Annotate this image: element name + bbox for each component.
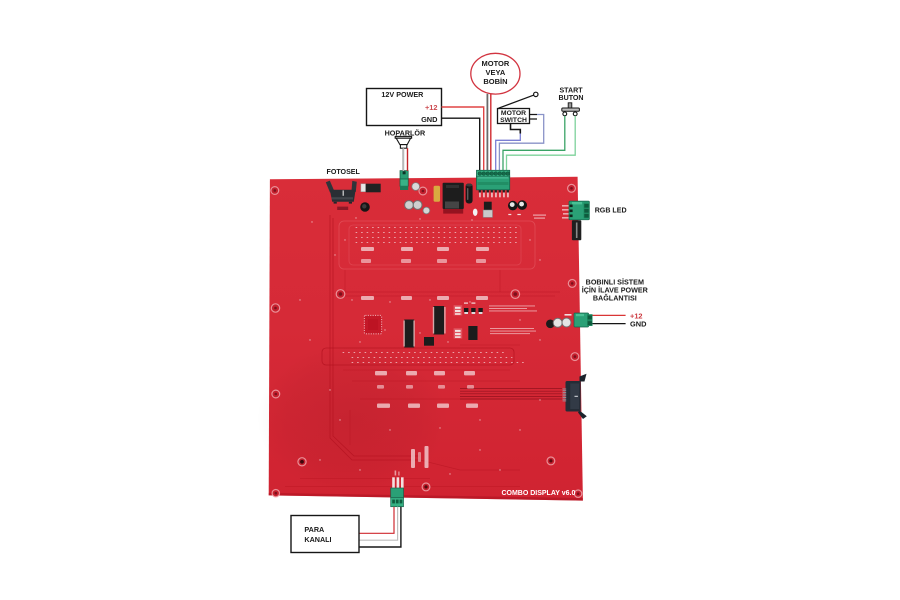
svg-text:GND: GND (421, 115, 438, 124)
svg-text:BAĞLANTISI: BAĞLANTISI (593, 293, 637, 302)
svg-text:COMBO DISPLAY v6.0: COMBO DISPLAY v6.0 (501, 490, 575, 497)
svg-text:SWITCH: SWITCH (500, 117, 527, 124)
svg-text:MOTOR: MOTOR (501, 110, 526, 117)
svg-text:FOTOSEL: FOTOSEL (327, 168, 361, 176)
svg-text:VEYA: VEYA (486, 68, 506, 77)
svg-text:GND: GND (630, 320, 647, 329)
svg-text:+12: +12 (425, 103, 438, 112)
svg-text:12V POWER: 12V POWER (381, 90, 424, 99)
svg-text:KANALI: KANALI (304, 535, 331, 544)
svg-text:BOBİN: BOBİN (483, 77, 507, 86)
svg-text:PARA: PARA (304, 525, 324, 534)
svg-text:RGB LED: RGB LED (595, 206, 627, 214)
svg-text:MOTOR: MOTOR (482, 59, 510, 68)
svg-text:BUTON: BUTON (558, 94, 583, 102)
